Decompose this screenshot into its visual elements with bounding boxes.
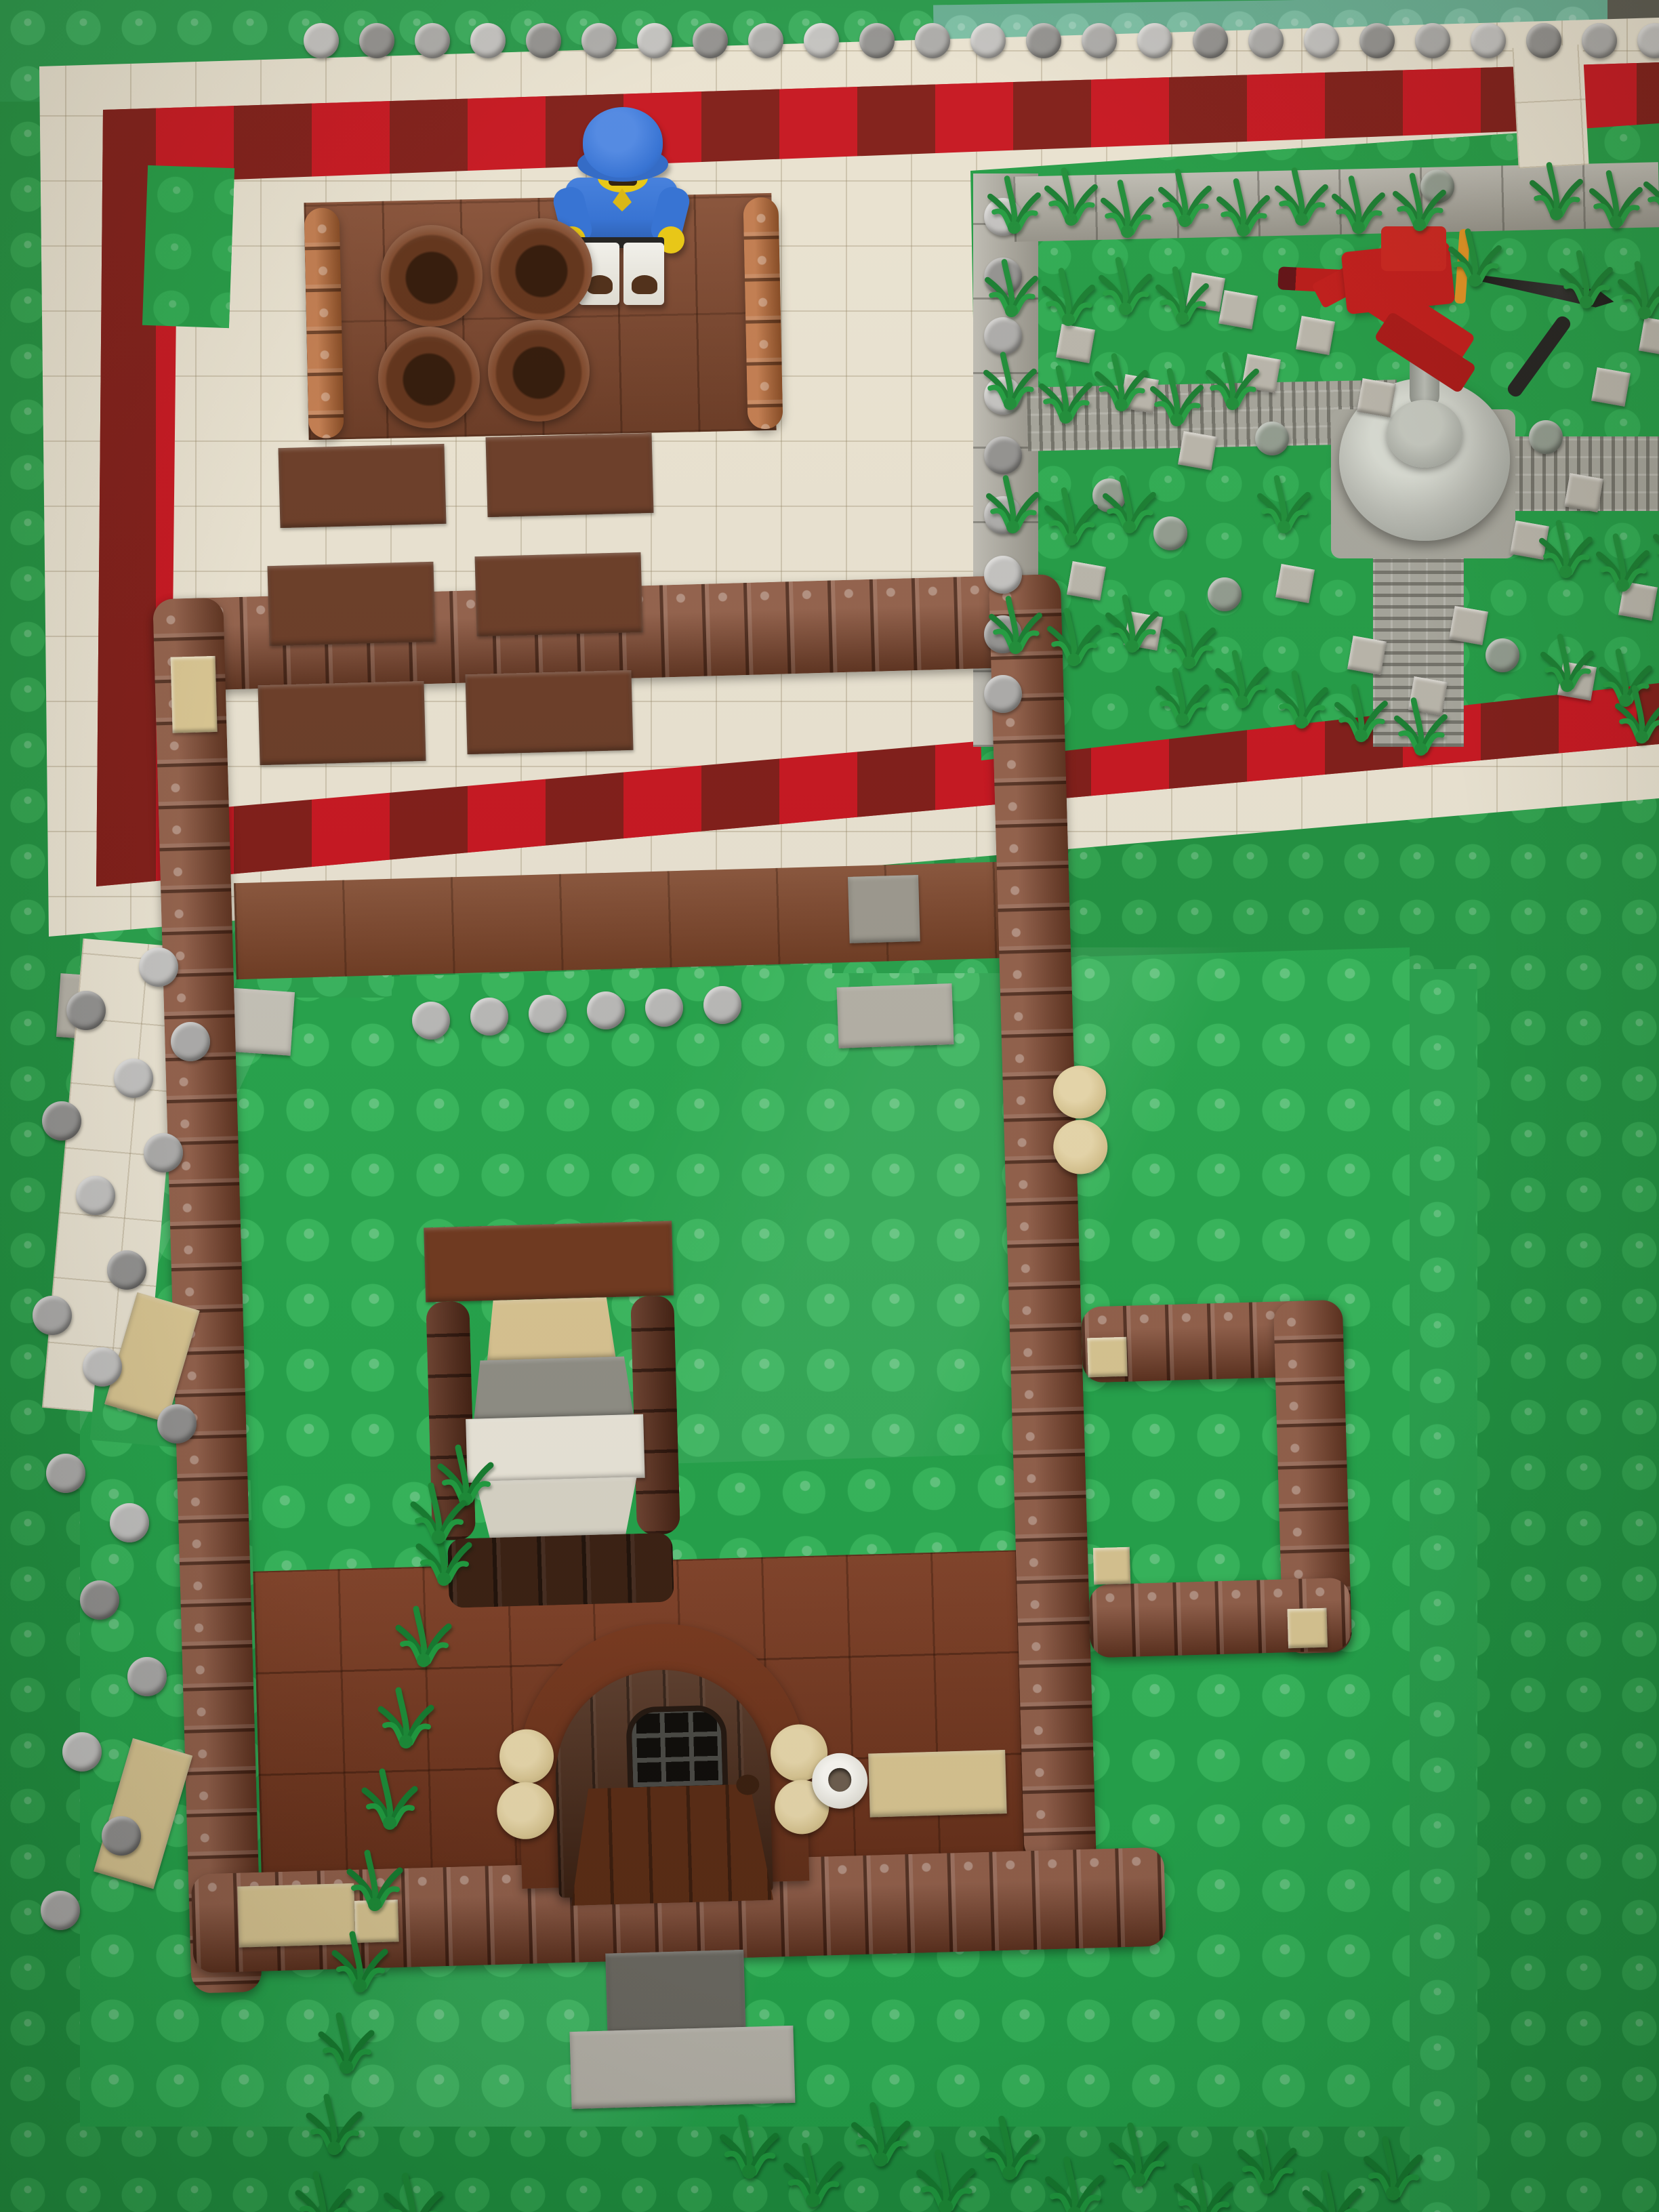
gray-round-plate: [171, 1022, 210, 1061]
gray-stud: [1526, 23, 1561, 58]
grass-tuft: [325, 1926, 393, 1994]
gray-stud: [1137, 23, 1172, 58]
gray-round-plate: [102, 1816, 141, 1856]
gray-stud: [748, 23, 783, 58]
grass-tuft: [1038, 2151, 1109, 2212]
gray-stud: [804, 23, 839, 58]
barrel: [381, 225, 483, 327]
brown-tile: [465, 670, 633, 754]
grass-tuft: [1357, 2131, 1428, 2202]
gray-square-plate: [1178, 431, 1217, 470]
grass-tuft: [1251, 470, 1315, 535]
gray-stud: [970, 23, 1006, 58]
grass-tuft: [377, 2167, 448, 2212]
gray-stud: [304, 23, 339, 58]
gray-stud: [915, 23, 950, 58]
gray-square-plate: [1591, 367, 1631, 407]
barrel: [488, 320, 590, 422]
gray-stud: [526, 23, 561, 58]
grass-tuft: [1033, 361, 1097, 425]
grass-tuft: [1088, 348, 1153, 413]
gray-square-plate: [1347, 636, 1387, 675]
grass-tuft: [1637, 159, 1659, 223]
grass-tuft: [1038, 163, 1103, 227]
grass-tuft: [983, 591, 1047, 655]
grass-tuft: [1612, 256, 1659, 321]
grass-tuft: [312, 2007, 380, 2075]
grass-tuft: [1553, 245, 1618, 310]
scatter-layer: [0, 0, 1659, 2212]
grass-tuft: [1326, 171, 1390, 235]
gray-round-plate: [62, 1732, 102, 1771]
gray-round-plate: [157, 1404, 197, 1443]
brown-tile: [267, 562, 435, 646]
grass-tuft: [1534, 629, 1599, 693]
gray-round-plate: [76, 1176, 115, 1215]
brown-tile: [278, 444, 446, 528]
gray-square-plate: [1564, 473, 1603, 512]
gray-round-plate: [470, 998, 508, 1036]
grass-tuft: [1152, 164, 1216, 228]
gray-stud: [581, 23, 617, 58]
grass-tuft: [1590, 529, 1654, 593]
brown-tile: [485, 433, 653, 517]
grass-tuft: [1388, 693, 1452, 757]
gray-round-plate: [587, 991, 625, 1029]
gray-stud: [415, 23, 450, 58]
lego-diorama-photo: Top-down photograph of a LEGO diorama: a…: [0, 0, 1659, 2212]
grass-tuft: [909, 2144, 981, 2212]
brown-tile: [258, 681, 426, 765]
gray-stud: [859, 23, 895, 58]
gray-stud: [1359, 23, 1395, 58]
grass-tuft: [1200, 347, 1264, 411]
grass-tuft: [1038, 483, 1103, 547]
grass-tuft: [1533, 515, 1597, 579]
grass-tuft: [1149, 262, 1214, 326]
gray-stud: [470, 23, 506, 58]
gray-round-plate: [1486, 638, 1519, 672]
grass-tuft: [389, 1601, 457, 1668]
grass-tuft: [340, 1845, 408, 1912]
grass-tuft: [1209, 645, 1273, 710]
gray-round-plate: [46, 1454, 85, 1493]
gray-stud: [984, 436, 1022, 474]
grass-tuft: [371, 1682, 439, 1750]
barrel: [378, 327, 480, 428]
grass-tuft: [1036, 263, 1100, 327]
grass-tuft: [1231, 2124, 1302, 2195]
grass-tuft: [1269, 163, 1333, 227]
gray-stud: [1471, 23, 1506, 58]
gray-square-plate: [1449, 606, 1488, 645]
grass-tuft: [844, 2097, 916, 2168]
gray-square-plate: [1275, 564, 1315, 603]
grass-tuft: [1099, 590, 1164, 654]
grass-tuft: [1094, 175, 1159, 239]
grass-tuft: [300, 2089, 367, 2156]
gray-round-plate: [107, 1250, 146, 1290]
grass-tuft: [980, 470, 1044, 535]
gray-round-plate: [33, 1296, 72, 1335]
gray-round-plate: [144, 1133, 183, 1172]
grass-tuft: [289, 2166, 356, 2212]
gray-round-plate: [1529, 420, 1563, 454]
gray-round-plate: [114, 1059, 153, 1098]
gray-round-plate: [42, 1101, 81, 1141]
grass-tuft: [1149, 663, 1214, 727]
gray-round-plate: [127, 1657, 167, 1696]
gray-stud: [1193, 23, 1228, 58]
gray-stud: [693, 23, 728, 58]
grass-tuft: [1609, 680, 1659, 745]
gray-stud: [1082, 23, 1117, 58]
gray-square-plate: [1218, 290, 1258, 329]
barrel: [491, 218, 592, 320]
gray-stud: [1248, 23, 1284, 58]
grass-tuft: [1387, 168, 1451, 232]
gray-round-plate: [80, 1580, 119, 1620]
grass-tuft: [1328, 679, 1393, 743]
gray-round-plate: [412, 1002, 450, 1040]
grass-tuft: [1647, 511, 1659, 575]
gray-stud: [984, 675, 1022, 713]
grass-tuft: [1523, 157, 1588, 222]
gray-stud: [359, 23, 394, 58]
grass-tuft: [777, 2137, 848, 2209]
brown-tile: [474, 552, 642, 636]
grass-tuft: [404, 1477, 472, 1545]
gray-square-plate: [1296, 316, 1335, 355]
grass-tuft: [1144, 363, 1208, 428]
gray-stud: [1415, 23, 1450, 58]
grass-tuft: [355, 1763, 423, 1831]
gray-stud: [984, 556, 1022, 594]
gray-stud: [1582, 23, 1617, 58]
gray-square-plate: [1357, 378, 1396, 417]
gray-round-plate: [529, 995, 567, 1033]
gray-round-plate: [139, 947, 178, 987]
grass-tuft: [713, 2109, 784, 2180]
grass-tuft: [977, 347, 1042, 411]
grass-tuft: [1041, 603, 1105, 668]
gray-round-plate: [83, 1347, 122, 1387]
grass-tuft: [1442, 224, 1507, 288]
gray-round-plate: [703, 986, 741, 1024]
gray-round-plate: [66, 991, 106, 1030]
gray-stud: [637, 23, 672, 58]
gray-stud: [1637, 23, 1659, 58]
gray-square-plate: [1639, 317, 1659, 356]
gray-stud: [1026, 23, 1061, 58]
grass-tuft: [1102, 2117, 1173, 2188]
gray-round-plate: [110, 1503, 149, 1542]
grass-tuft: [1210, 173, 1275, 238]
grass-tuft: [979, 254, 1043, 319]
gray-round-plate: [41, 1891, 80, 1930]
gray-round-plate: [1255, 422, 1289, 455]
grass-tuft: [1097, 470, 1161, 535]
grass-tuft: [1092, 252, 1157, 316]
grass-tuft: [1269, 665, 1333, 730]
grass-tuft: [973, 2110, 1044, 2182]
gray-round-plate: [645, 989, 683, 1027]
grass-tuft: [1167, 2158, 1238, 2212]
grass-tuft: [981, 171, 1046, 235]
gray-stud: [1304, 23, 1339, 58]
